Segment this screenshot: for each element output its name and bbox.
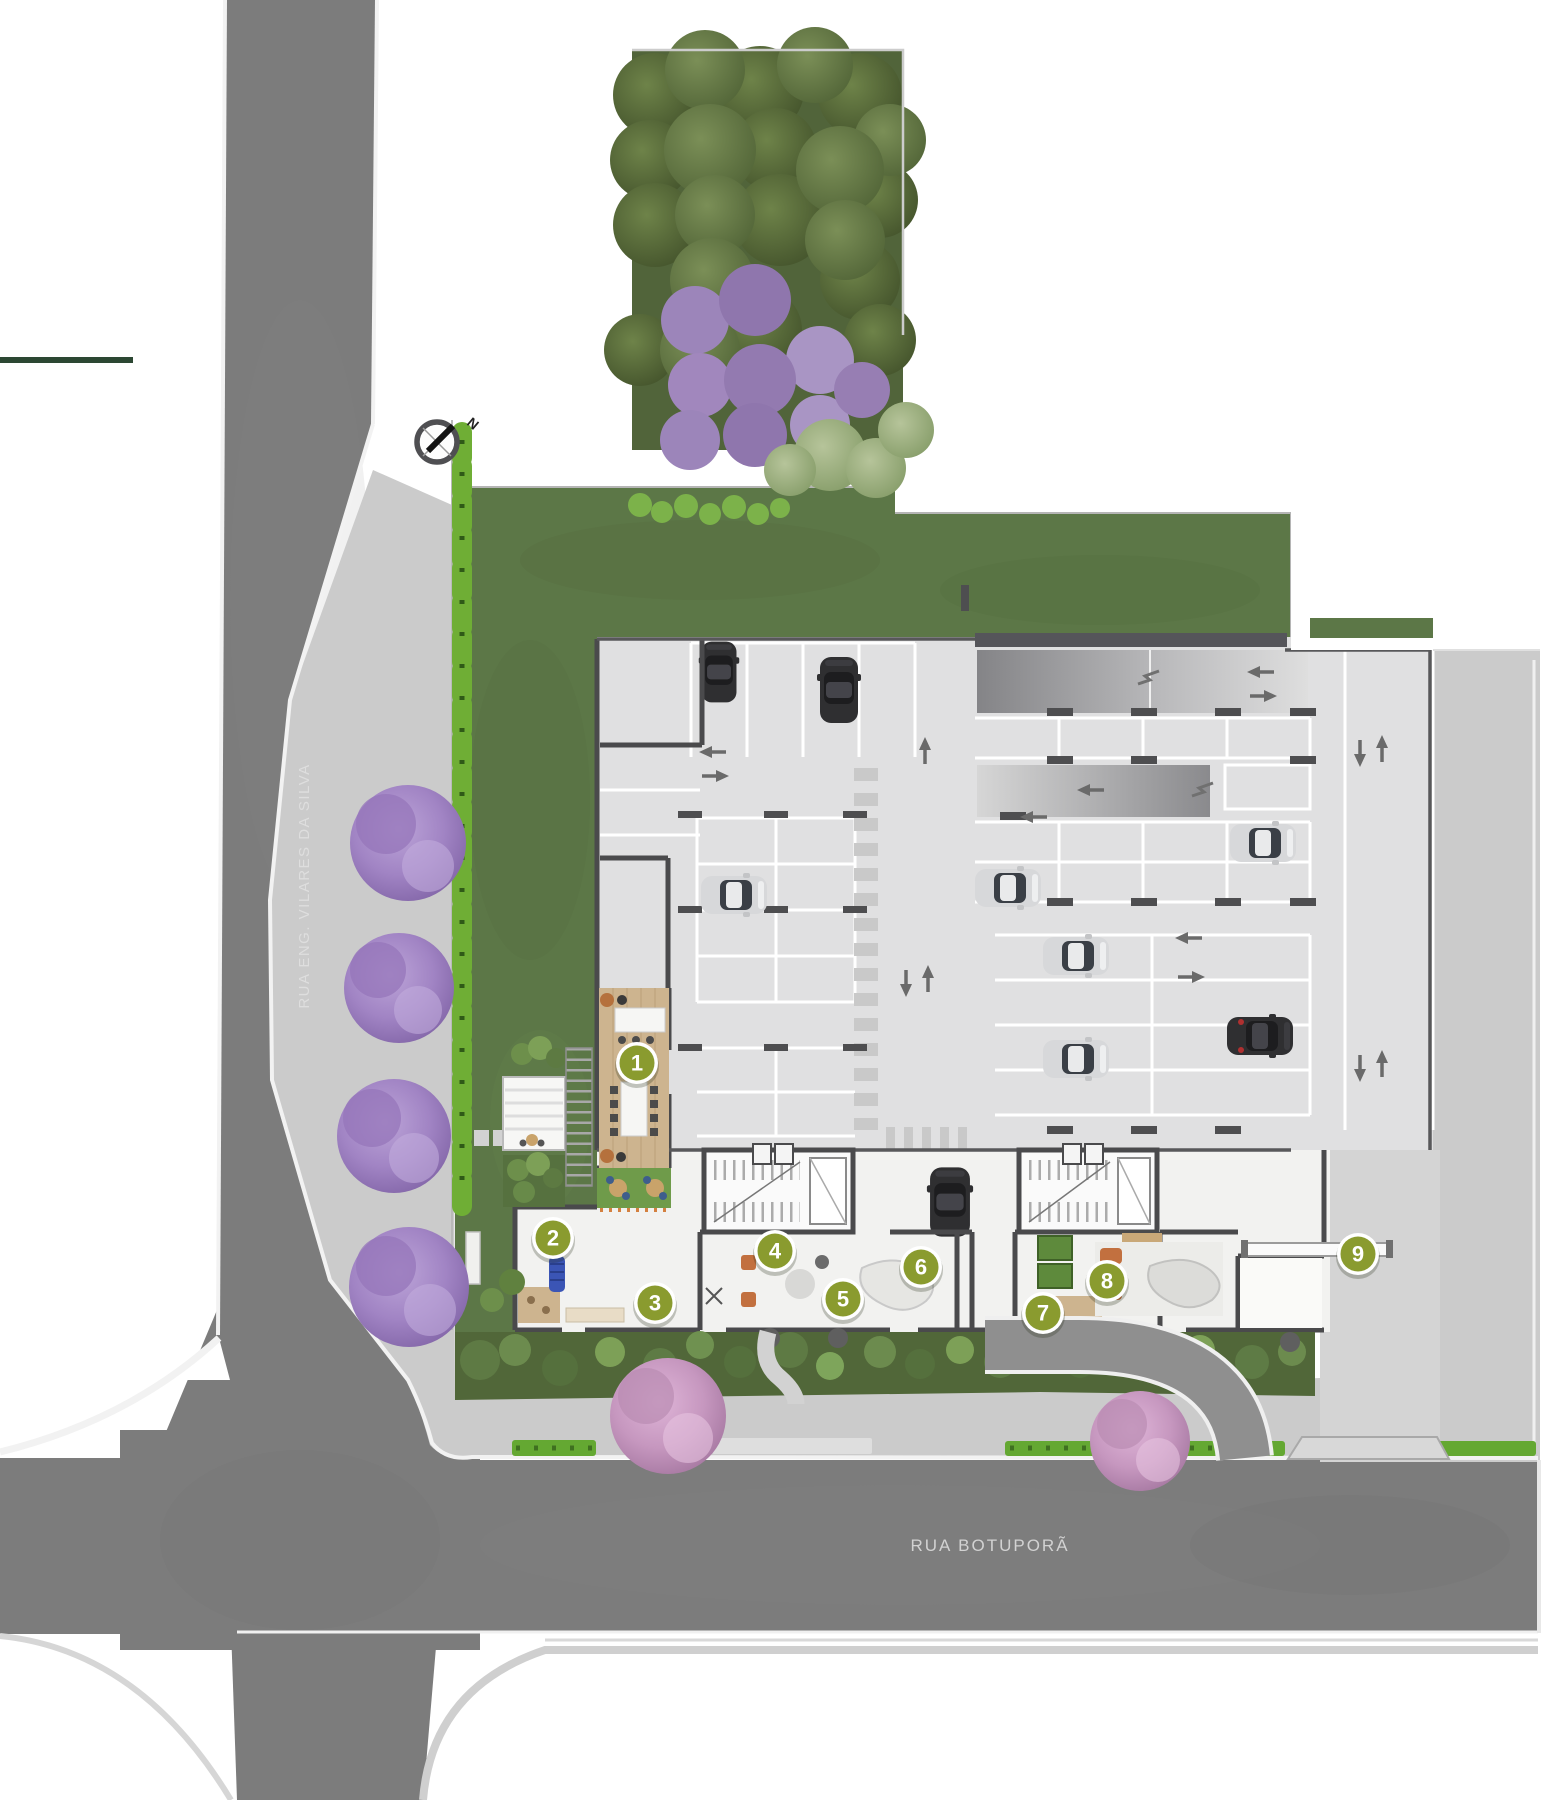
marker-label: 4 — [769, 1239, 782, 1264]
pouf — [600, 993, 614, 1007]
neighbor-lot-mask — [1291, 420, 1564, 650]
amenity-marker-4[interactable]: 4 — [753, 1230, 797, 1276]
pink-tree — [610, 1358, 726, 1474]
compass-rose — [417, 422, 457, 462]
marker-label: 5 — [837, 1287, 849, 1312]
dining-table — [621, 1082, 647, 1136]
car — [1227, 1014, 1293, 1058]
accent-line — [0, 357, 133, 363]
counter — [566, 1308, 624, 1322]
outdoor-terrace — [597, 1168, 671, 1210]
driveway-apron — [1288, 1437, 1449, 1459]
pouf — [617, 995, 627, 1005]
service-room — [1240, 1258, 1322, 1328]
stepping-stone — [474, 1130, 489, 1146]
corner-lot-southeast — [423, 1650, 1564, 1800]
marker-label: 3 — [649, 1291, 661, 1316]
car — [1230, 821, 1296, 865]
car — [1043, 934, 1109, 978]
purple-tree — [337, 1079, 451, 1193]
street-label-left: RUA ENG. VILARES DA SILVA — [296, 763, 313, 1008]
car — [1043, 1037, 1109, 1081]
street-label-bottom: RUA BOTUPORÃ — [910, 1536, 1069, 1555]
rug — [785, 1269, 815, 1299]
pink-tree — [1090, 1391, 1190, 1491]
pergola-patio — [503, 1077, 565, 1150]
amenity-marker-7[interactable]: 7 — [1021, 1292, 1065, 1338]
car — [927, 1167, 973, 1236]
car — [699, 642, 739, 703]
wood-mat — [518, 1287, 560, 1323]
sidewalk-paving-strip — [712, 1438, 872, 1454]
amenity-marker-1[interactable]: 1 — [615, 1042, 659, 1088]
marker-label: 2 — [547, 1226, 559, 1251]
amenity-marker-3[interactable]: 3 — [633, 1282, 677, 1328]
margin-right — [1540, 1430, 1564, 1650]
marker-label: 1 — [631, 1051, 643, 1076]
driveway-court-east — [1320, 1150, 1440, 1462]
car — [817, 657, 861, 723]
pouf — [600, 1149, 614, 1163]
marker-label: 9 — [1352, 1242, 1364, 1267]
purple-tree — [344, 933, 454, 1043]
garden-bed — [503, 1152, 565, 1207]
bench — [466, 1232, 480, 1284]
kitchen-island — [615, 1008, 665, 1032]
sidewalk-east — [1433, 650, 1540, 1462]
amenity-marker-5[interactable]: 5 — [821, 1278, 865, 1324]
car — [975, 866, 1041, 910]
marker-label: 7 — [1037, 1301, 1049, 1326]
lawn-strip-right-2 — [1310, 618, 1433, 638]
purple-tree — [349, 1227, 469, 1347]
building — [515, 585, 1433, 1332]
purple-tree — [350, 785, 466, 901]
pouf — [741, 1292, 756, 1307]
amenity-marker-8[interactable]: 8 — [1085, 1260, 1129, 1306]
site-plan: 1 2 3 4 5 6 — [0, 0, 1564, 1800]
amenity-marker-6[interactable]: 6 — [899, 1246, 943, 1292]
patio-table — [526, 1134, 538, 1146]
marker-label: 6 — [915, 1255, 927, 1280]
amenity-marker-9[interactable]: 9 — [1336, 1233, 1380, 1279]
amenity-marker-2[interactable]: 2 — [531, 1217, 575, 1263]
car — [701, 873, 767, 917]
wall-top-thick — [975, 633, 1287, 647]
marker-label: 8 — [1101, 1269, 1113, 1294]
planter — [815, 1255, 829, 1269]
